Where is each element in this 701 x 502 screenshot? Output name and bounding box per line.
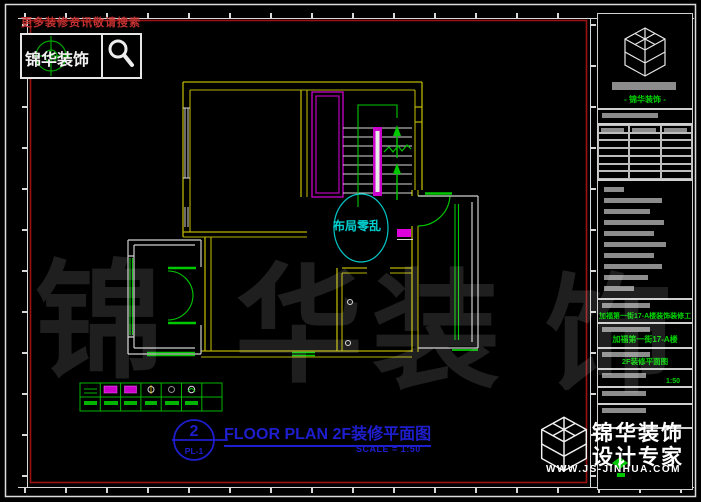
watermark-char: 华 [235, 262, 363, 392]
tb-cell [629, 125, 660, 133]
tb-note-bar [604, 231, 654, 236]
magenta-fixture [397, 229, 411, 237]
stair-rail-core [376, 131, 380, 192]
left-wall-window [183, 108, 190, 227]
tb-cell [629, 171, 660, 179]
tb-revision-table [597, 124, 693, 180]
sheet-title: FLOOR PLAN 2F装修平面图 [224, 420, 431, 447]
sheet-scale: SCALE = 1:50 [356, 444, 421, 454]
brand-search-box: 锦华装饰 [20, 33, 142, 79]
tb-note-bar [604, 220, 664, 225]
tb-cell [598, 133, 629, 141]
tb-cell [598, 156, 629, 164]
tb-cell [629, 148, 660, 156]
tb-cell [661, 133, 692, 141]
tb-note-bar [604, 187, 624, 192]
brand-cell: 锦华装饰 [22, 35, 101, 77]
tb-cell [661, 125, 692, 133]
tb-cell [661, 171, 692, 179]
tb-strip-box [597, 109, 693, 124]
watermark-char: 饰 [545, 272, 673, 402]
sheet-number: 2 [184, 423, 204, 441]
tb-note-bar [604, 209, 650, 214]
tb-note-bar [604, 198, 662, 203]
watermark-char: 装 [372, 268, 500, 398]
tb-cell [661, 164, 692, 172]
tb-cell [629, 133, 660, 141]
tb-cell [598, 125, 629, 133]
tb-header-bar [632, 128, 655, 132]
stair-shaft [312, 92, 343, 197]
company-cube-logo [621, 26, 669, 78]
legend-symbol-outlet [188, 386, 195, 392]
right-door [418, 196, 450, 226]
legend-symbol-switch [169, 387, 175, 393]
search-cell [101, 35, 140, 77]
tb-note-bar [604, 253, 654, 258]
tb-header-bar [601, 128, 624, 132]
tb-cell [629, 156, 660, 164]
brand-name: 锦华装饰 [25, 46, 89, 70]
tb-name-bar [612, 82, 676, 90]
tb-logo-box: - 锦华装饰 - [597, 13, 693, 109]
tb-cell [661, 140, 692, 148]
tb-cell [598, 140, 629, 148]
tb-cell [598, 164, 629, 172]
double-door [168, 268, 196, 323]
staircase [312, 92, 412, 207]
tb-cell [661, 156, 692, 164]
footer-url: WWW.JS-JINHUA.COM [546, 464, 681, 475]
search-icon [104, 36, 137, 74]
stair-shaft-inner [316, 96, 339, 193]
tb-note-bar [604, 242, 666, 247]
tb-strip-bar [602, 113, 658, 118]
tb-brand-line: - 锦华装饰 - [598, 94, 692, 105]
watermark-char: 锦 [35, 258, 163, 388]
tb-cell [629, 140, 660, 148]
stair-direction-arrows [393, 125, 401, 200]
cad-sheet: 更多装修资讯敬请搜索 锦华装饰 布局零乱 2 PL-1 FLOOR PLAN 2… [0, 0, 701, 502]
plan-annotation: 布局零乱 [333, 217, 381, 234]
tb-cell [598, 148, 629, 156]
promo-text: 更多装修资讯敬请搜索 [21, 14, 181, 30]
tb-cell [629, 164, 660, 172]
sheet-ref: PL-1 [176, 446, 212, 456]
tb-cell [598, 171, 629, 179]
tb-cell [661, 148, 692, 156]
tb-header-bar [664, 128, 687, 132]
tb-label-bar [602, 408, 646, 413]
